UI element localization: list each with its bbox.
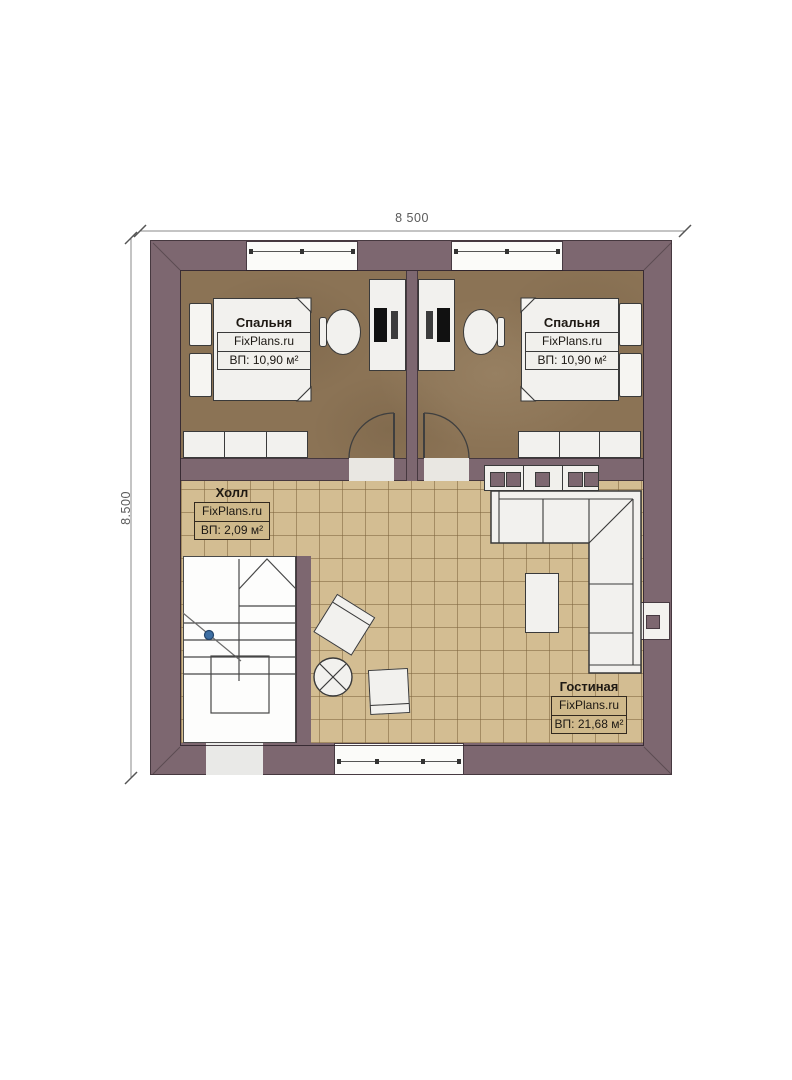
computer-monitor xyxy=(374,308,387,342)
brand-watermark: FixPlans.ru xyxy=(525,332,619,352)
door-opening-left xyxy=(349,458,394,481)
room-area: ВП: 10,90 м² xyxy=(525,352,619,371)
pillow xyxy=(619,303,642,346)
room-name: Спальня xyxy=(525,315,619,330)
brand-watermark: FixPlans.ru xyxy=(217,332,311,352)
room-name: Спальня xyxy=(217,315,311,330)
tv-stand xyxy=(484,465,599,491)
keyboard xyxy=(426,311,433,339)
armchair xyxy=(368,668,410,712)
wardrobe-right xyxy=(518,431,641,458)
room-area: ВП: 21,68 м² xyxy=(551,716,627,735)
dimension-left-label: 8.500 xyxy=(119,466,133,550)
room-area: ВП: 2,09 м² xyxy=(194,522,270,541)
brand-watermark: FixPlans.ru xyxy=(551,696,627,716)
opening-bottom-left xyxy=(206,743,263,775)
stairwell-wall xyxy=(296,556,311,743)
room-name: Холл xyxy=(194,485,270,500)
pillow xyxy=(189,353,212,397)
room-label-bedroom-left: Спальня FixPlans.ru ВП: 10,90 м² xyxy=(217,315,311,370)
desk-right xyxy=(418,279,455,371)
room-name: Гостиная xyxy=(551,679,627,694)
door-opening-right xyxy=(424,458,469,481)
chimney-flue xyxy=(646,615,660,629)
bedroom-partition-wall xyxy=(406,271,418,481)
window-top-right xyxy=(451,241,563,271)
chimney-block xyxy=(634,602,670,640)
keyboard xyxy=(391,311,398,339)
floor-plan: Спальня FixPlans.ru ВП: 10,90 м² Спальня… xyxy=(150,240,672,775)
office-chair-left xyxy=(325,309,361,355)
office-chair-right xyxy=(463,309,499,355)
window-bottom xyxy=(334,743,464,775)
pillow xyxy=(619,353,642,397)
floor-plan-page: 8 500 8.500 xyxy=(0,0,792,1080)
computer-monitor xyxy=(437,308,450,342)
room-label-bedroom-right: Спальня FixPlans.ru ВП: 10,90 м² xyxy=(525,315,619,370)
coffee-table xyxy=(525,573,559,633)
room-label-living: Гостиная FixPlans.ru ВП: 21,68 м² xyxy=(551,679,627,734)
pillow xyxy=(189,303,212,346)
room-area: ВП: 10,90 м² xyxy=(217,352,311,371)
brand-watermark: FixPlans.ru xyxy=(194,502,270,522)
desk-left xyxy=(369,279,406,371)
stairwell xyxy=(183,556,296,743)
wardrobe-left xyxy=(183,431,308,458)
room-label-hall: Холл FixPlans.ru ВП: 2,09 м² xyxy=(194,485,270,540)
window-top-left xyxy=(246,241,358,271)
dimension-top-label: 8 500 xyxy=(370,211,454,225)
